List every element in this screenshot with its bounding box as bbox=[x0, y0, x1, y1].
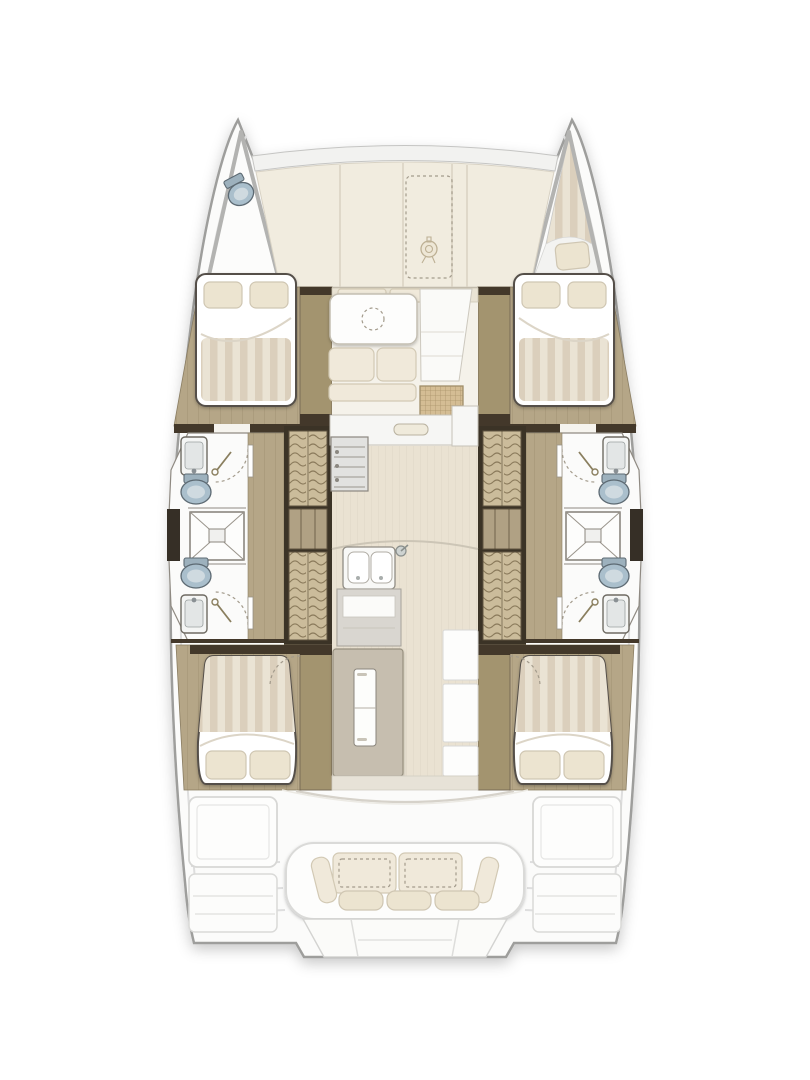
port-hull-contents bbox=[167, 274, 332, 790]
door-leaf bbox=[248, 597, 253, 629]
storage-cabinet bbox=[443, 684, 478, 742]
v-berth-cushion bbox=[555, 241, 591, 270]
bench-cushion bbox=[329, 348, 374, 381]
bench-cushion bbox=[329, 384, 416, 401]
shower-drain bbox=[209, 529, 225, 542]
foredeck bbox=[256, 162, 554, 287]
aft-bulkhead bbox=[190, 645, 302, 654]
catamaran-floor-plan: Catamaran yacht deck floor plan, top vie… bbox=[0, 0, 810, 1080]
sink-forward bbox=[181, 437, 207, 475]
salon bbox=[329, 288, 478, 790]
stair-landing bbox=[289, 509, 327, 549]
cockpit-door-sill bbox=[332, 776, 478, 790]
starboard-hull-contents bbox=[478, 274, 643, 790]
sofa-seat-cushion bbox=[339, 891, 383, 910]
dinette-table bbox=[330, 294, 417, 344]
hanging-locker bbox=[167, 509, 180, 561]
toilet-forward bbox=[181, 474, 211, 504]
swim-platform-steps bbox=[303, 919, 507, 957]
counter-handle-slot bbox=[394, 424, 428, 435]
storage-cabinet bbox=[443, 746, 478, 776]
bench-cushion bbox=[377, 348, 416, 381]
bathrooms-port bbox=[167, 433, 284, 643]
refrigerator bbox=[333, 649, 403, 776]
galley-counter-right bbox=[452, 406, 478, 446]
sofa-seat-cushion bbox=[435, 891, 479, 910]
bed-pillow bbox=[250, 751, 290, 779]
door-leaf bbox=[248, 445, 253, 477]
sofa-seat-cushion bbox=[387, 891, 431, 910]
cockpit-locker-port bbox=[189, 797, 277, 867]
stern-steps-starboard bbox=[533, 874, 621, 932]
bed-pillow bbox=[250, 282, 288, 308]
floor-plan-svg: Catamaran yacht deck floor plan, top vie… bbox=[0, 0, 810, 1080]
storage-cabinet bbox=[443, 630, 478, 680]
sink-aft bbox=[181, 595, 207, 633]
stern-steps-port bbox=[189, 874, 277, 932]
bed-pillow bbox=[204, 282, 242, 308]
stairs-port bbox=[284, 426, 332, 645]
aft-cabin-port bbox=[176, 645, 332, 790]
cockpit-locker-starboard bbox=[533, 797, 621, 867]
galley-stove bbox=[331, 437, 368, 491]
cockpit-sofa bbox=[286, 843, 524, 919]
aft-bed-duvet bbox=[196, 656, 298, 732]
galley-double-sink bbox=[343, 547, 395, 589]
toilet-aft bbox=[181, 558, 211, 588]
galley-aft-unit bbox=[337, 589, 401, 646]
forward-bed-duvet bbox=[201, 338, 291, 401]
bed-pillow bbox=[206, 751, 246, 779]
